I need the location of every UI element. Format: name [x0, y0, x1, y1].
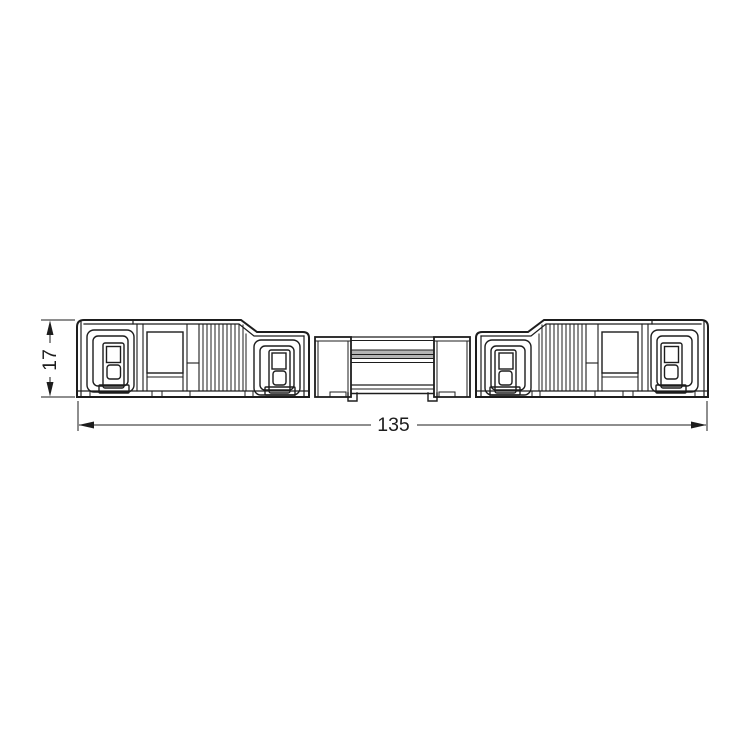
height-dimension: 17 — [39, 320, 75, 397]
height-dimension-label: 17 — [39, 349, 61, 371]
technical-drawing-page: 17 135 — [0, 0, 750, 750]
dimension-arrow-right-icon — [691, 422, 707, 429]
left-connector — [77, 320, 357, 401]
center-rail-assembly — [351, 337, 434, 394]
right-connector — [428, 320, 708, 401]
length-dimension: 135 — [78, 401, 707, 436]
dimension-arrow-left-icon — [79, 422, 95, 429]
connector-technical-drawing: 17 135 — [0, 0, 750, 750]
dimension-arrow-down-icon — [47, 382, 54, 397]
dimension-arrow-up-icon — [47, 321, 54, 336]
length-dimension-label: 135 — [377, 414, 410, 436]
